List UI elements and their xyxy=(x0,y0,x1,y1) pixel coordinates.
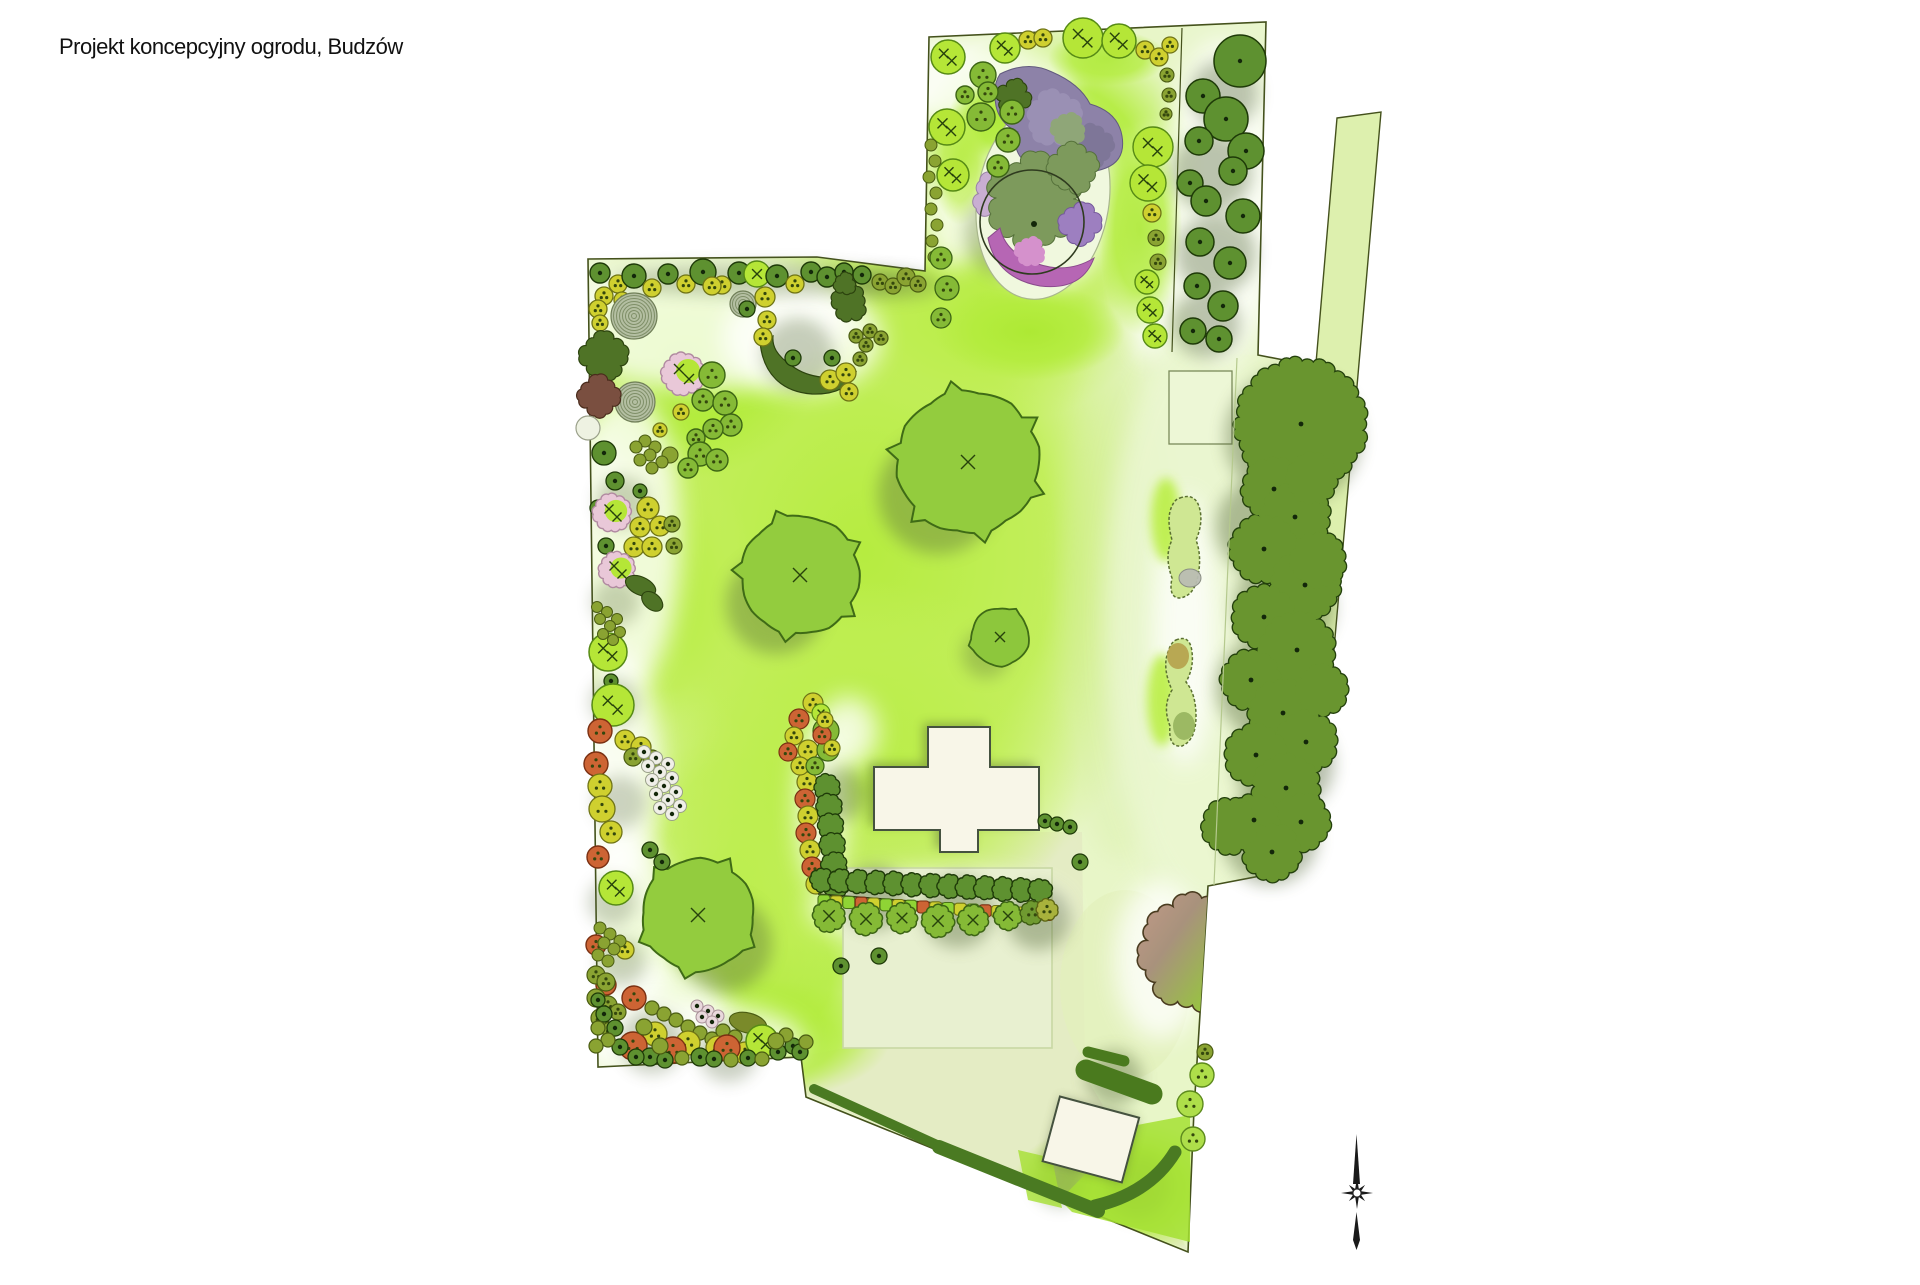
svg-text:Projekt koncepcyjny ogrodu, Bu: Projekt koncepcyjny ogrodu, Budzów xyxy=(59,34,403,59)
